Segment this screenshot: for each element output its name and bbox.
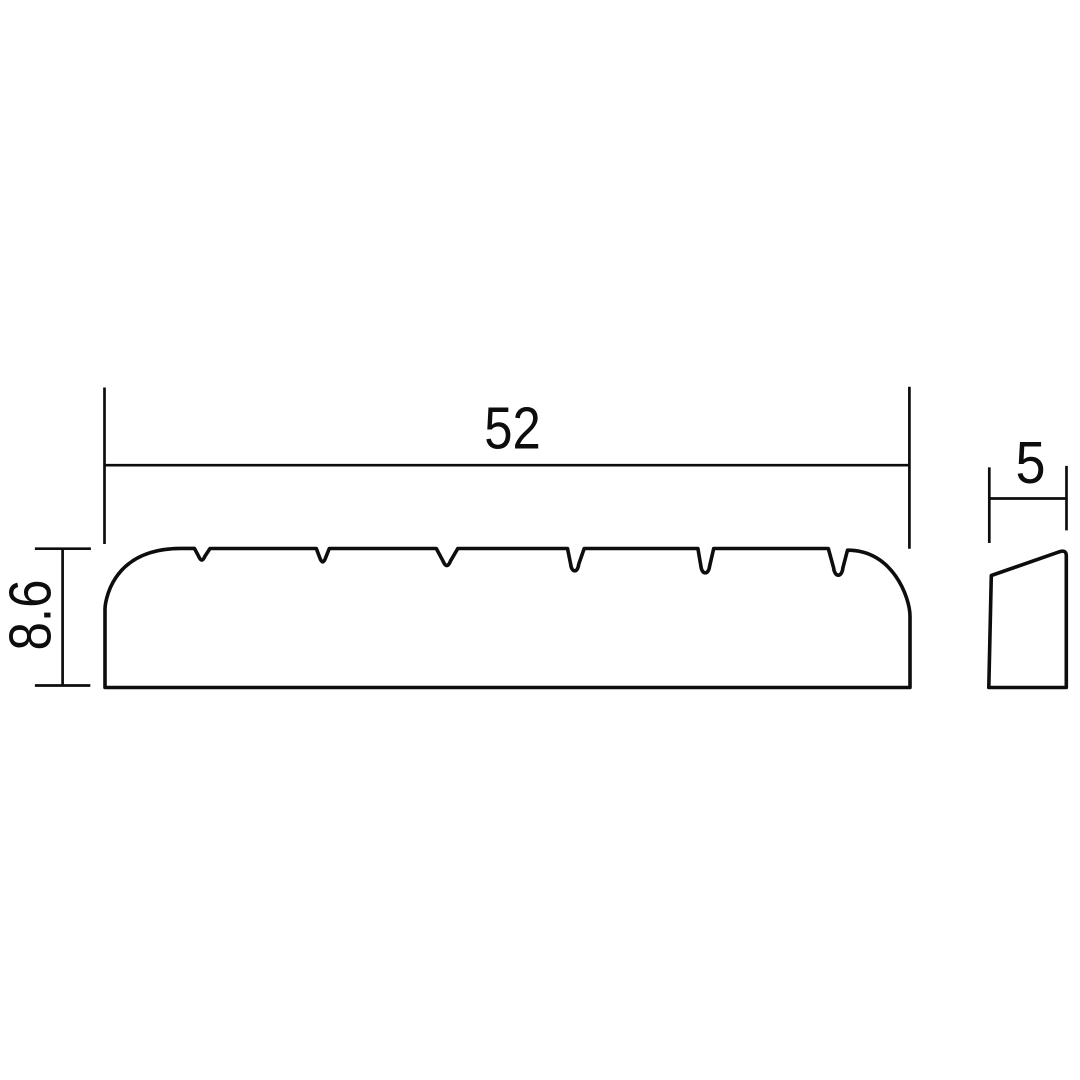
svg-text:52: 52	[484, 394, 541, 461]
svg-text:5: 5	[1016, 429, 1046, 496]
svg-text:8.6: 8.6	[0, 580, 64, 651]
